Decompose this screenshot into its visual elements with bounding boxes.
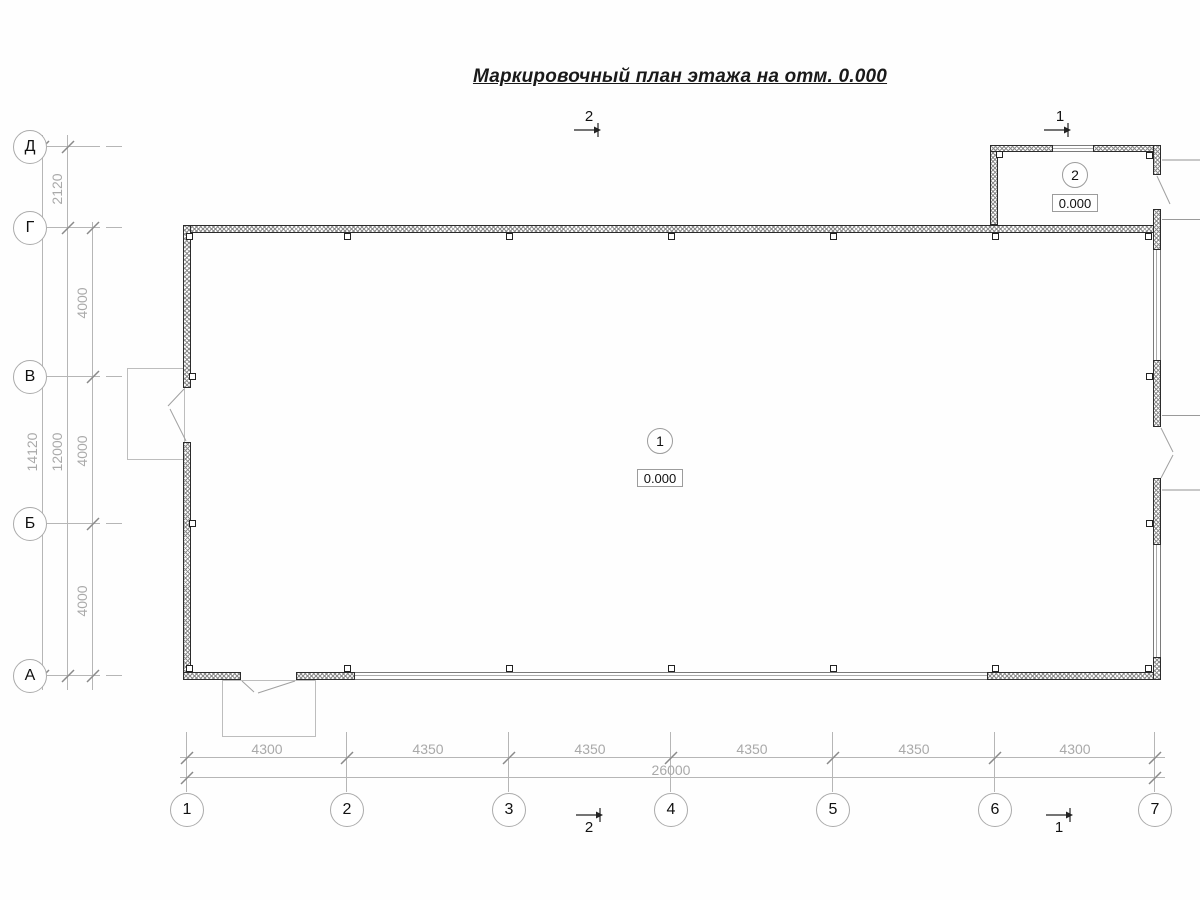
right-stub-3 xyxy=(1162,415,1200,416)
wall-bottom-3 xyxy=(987,672,1161,680)
dim-left-span-3: 4000 xyxy=(74,561,90,641)
ext-line-col-2 xyxy=(346,732,347,792)
ext-line-col-5 xyxy=(832,732,833,792)
pilaster-bottom-col3 xyxy=(506,665,513,672)
dim-bottom-total: 26000 xyxy=(631,762,711,778)
ext-line-col-1 xyxy=(186,732,187,792)
wall-right-lower xyxy=(1153,657,1161,680)
pilaster-right-row-b xyxy=(1146,520,1153,527)
axis-bubble-col-7: 7 xyxy=(1138,793,1172,827)
bottom-porch-outline xyxy=(222,680,316,737)
floor-plan-canvas: Маркировочный план этажа на отм. 0.000 xyxy=(0,0,1200,900)
pilaster-top-col5 xyxy=(830,233,837,240)
dim-bottom-span-5: 4350 xyxy=(884,741,944,757)
axis-bubble-col-6: 6 xyxy=(978,793,1012,827)
section-1-top-arrow-icon xyxy=(1044,120,1074,140)
window-right-upper xyxy=(1153,250,1161,360)
pilaster-top-col1 xyxy=(186,233,193,240)
axis-line-d xyxy=(47,146,100,147)
wall-right-upper xyxy=(1153,209,1161,250)
wall-bottom-1 xyxy=(183,672,241,680)
wall-left-upper xyxy=(183,225,191,388)
axis-bubble-col-5: 5 xyxy=(816,793,850,827)
section-1-bottom-label: 1 xyxy=(1050,819,1068,836)
room-2-elevation: 0.000 xyxy=(1052,194,1098,212)
dim-bottom-span-1: 4300 xyxy=(237,741,297,757)
axis-label: 2 xyxy=(343,801,352,819)
section-2-bottom-label: 2 xyxy=(580,819,598,836)
axis-label: 1 xyxy=(183,801,192,819)
axis-bubble-col-4: 4 xyxy=(654,793,688,827)
pilaster-bottom-col6 xyxy=(992,665,999,672)
pilaster-bottom-col7 xyxy=(1145,665,1152,672)
axis-label: 6 xyxy=(991,801,1000,819)
pilaster-left-row-b xyxy=(189,520,196,527)
pilaster-bottom-col5 xyxy=(830,665,837,672)
pilaster-top-col6 xyxy=(992,233,999,240)
window-band-bottom xyxy=(355,672,987,680)
pilaster-top-col2 xyxy=(344,233,351,240)
pilaster-right-row-v xyxy=(1146,373,1153,380)
axis-bubble-row-g: Г xyxy=(13,211,47,245)
axis-label: В xyxy=(25,368,36,386)
room-2-bubble: 2 xyxy=(1062,162,1088,188)
axis-bubble-row-d: Д xyxy=(13,130,47,164)
pilaster-top-col3 xyxy=(506,233,513,240)
wall-annex-right xyxy=(1153,145,1161,175)
dim-bottom-span-4: 4350 xyxy=(722,741,782,757)
axis-label: 5 xyxy=(829,801,838,819)
axis-line-b-dash xyxy=(106,523,122,524)
dim-left-d-g: 2120 xyxy=(49,149,65,229)
dim-left-span-1: 4000 xyxy=(74,263,90,343)
window-right-lower xyxy=(1153,545,1161,657)
axis-bubble-row-a: А xyxy=(13,659,47,693)
window-annex-top xyxy=(1053,145,1093,152)
annex-door-leaf xyxy=(1157,176,1170,204)
drawing-title: Маркировочный план этажа на отм. 0.000 xyxy=(380,66,980,88)
wall-bottom-2 xyxy=(296,672,355,680)
dim-bottom-span-2: 4350 xyxy=(398,741,458,757)
axis-bubble-row-b: Б xyxy=(13,507,47,541)
pilaster-bottom-col2 xyxy=(344,665,351,672)
right-stub-2 xyxy=(1162,219,1200,220)
wall-top-main xyxy=(183,225,1161,233)
elevation-value: 0.000 xyxy=(644,471,677,486)
dim-left-g-a: 12000 xyxy=(49,412,65,492)
dim-line-bottom-spans xyxy=(180,757,1165,758)
wall-left-lower xyxy=(183,442,191,680)
axis-label: 7 xyxy=(1151,801,1160,819)
pilaster-left-row-v xyxy=(189,373,196,380)
ext-line-col-3 xyxy=(508,732,509,792)
right-stub-1 xyxy=(1162,159,1200,161)
dim-bottom-span-3: 4350 xyxy=(560,741,620,757)
wall-right-mid1 xyxy=(1153,360,1161,427)
dim-left-total: 14120 xyxy=(24,412,40,492)
axis-bubble-row-v: В xyxy=(13,360,47,394)
pilaster-top-col4 xyxy=(668,233,675,240)
section-2-top-arrow-icon xyxy=(574,120,604,140)
pilaster-annex-right xyxy=(1146,152,1153,159)
pilaster-bottom-col1 xyxy=(186,665,193,672)
room-number: 1 xyxy=(656,433,664,449)
axis-line-d-dash xyxy=(106,146,122,147)
pilaster-bottom-col4 xyxy=(668,665,675,672)
right-door-leaf-1 xyxy=(1161,428,1173,452)
room-1-elevation: 0.000 xyxy=(637,469,683,487)
dim-line-left-middle xyxy=(67,135,68,690)
ext-line-col-6 xyxy=(994,732,995,792)
dim-left-span-2: 4000 xyxy=(74,411,90,491)
left-porch-outline xyxy=(127,368,185,460)
axis-label: 3 xyxy=(505,801,514,819)
axis-line-a-dash xyxy=(106,675,122,676)
wall-annex-top-2 xyxy=(1093,145,1161,152)
room-number: 2 xyxy=(1071,167,1079,183)
axis-line-g-dash xyxy=(106,227,122,228)
room-1-bubble: 1 xyxy=(647,428,673,454)
axis-line-v-dash xyxy=(106,376,122,377)
right-door-leaf-2 xyxy=(1161,455,1173,478)
axis-bubble-col-2: 2 xyxy=(330,793,364,827)
axis-label: Д xyxy=(25,138,36,156)
axis-label: А xyxy=(25,667,36,685)
axis-label: Б xyxy=(25,515,36,533)
dim-line-left-inner xyxy=(92,222,93,690)
right-stub-4 xyxy=(1162,489,1200,491)
pilaster-annex-left xyxy=(996,151,1003,158)
ext-line-col-7 xyxy=(1154,732,1155,792)
axis-label: Г xyxy=(26,219,35,237)
axis-label: 4 xyxy=(667,801,676,819)
dim-bottom-span-6: 4300 xyxy=(1045,741,1105,757)
elevation-value: 0.000 xyxy=(1059,196,1092,211)
axis-bubble-col-3: 3 xyxy=(492,793,526,827)
axis-bubble-col-1: 1 xyxy=(170,793,204,827)
wall-right-mid2 xyxy=(1153,478,1161,545)
pilaster-top-col7 xyxy=(1145,233,1152,240)
